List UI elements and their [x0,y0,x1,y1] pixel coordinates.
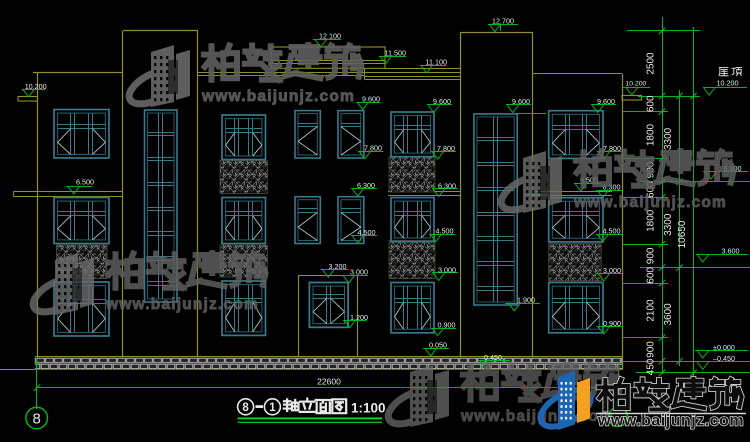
svg-text:3.000: 3.000 [350,268,368,277]
svg-text:600: 600 [646,95,657,112]
svg-text:3300: 3300 [663,127,674,150]
svg-text:www.baijunjz.com: www.baijunjz.com [573,194,727,211]
svg-text:0.050: 0.050 [429,341,447,350]
svg-text:6.500: 6.500 [76,178,94,187]
svg-text:900: 900 [646,341,657,358]
svg-text:1:100: 1:100 [351,401,386,416]
svg-text:www.baijunjz.com: www.baijunjz.com [201,88,355,105]
svg-text:7.800: 7.800 [364,144,382,153]
svg-text:±0.000: ±0.000 [713,343,735,352]
svg-text:9.600: 9.600 [362,95,380,104]
svg-text:4.500: 4.500 [436,226,454,235]
svg-text:7.800: 7.800 [437,144,455,153]
svg-text:1800: 1800 [646,123,657,146]
svg-text:www.baijunjz.com: www.baijunjz.com [460,408,614,425]
svg-text:1.200: 1.200 [350,313,368,322]
svg-text:900: 900 [646,247,657,264]
svg-text:8: 8 [33,411,41,428]
svg-text:4.500: 4.500 [358,228,376,237]
svg-text:6.300: 6.300 [438,181,456,190]
svg-text:11.500: 11.500 [385,49,406,58]
svg-text:9.600: 9.600 [512,97,530,106]
svg-text:www.baijunjz.com: www.baijunjz.com [105,296,259,313]
svg-text:12.100: 12.100 [319,32,341,41]
svg-text:2500: 2500 [646,52,657,75]
svg-text:–0.450: –0.450 [713,354,735,363]
svg-text:3.200: 3.200 [329,262,347,271]
svg-text:3.000: 3.000 [438,265,456,274]
svg-text:10650: 10650 [677,220,688,248]
svg-text:4.500: 4.500 [603,226,621,235]
svg-text:8: 8 [242,402,249,414]
svg-text:3600: 3600 [663,303,674,326]
svg-text:–0.450: –0.450 [480,353,502,362]
svg-text:1800: 1800 [646,209,657,232]
svg-text:2100: 2100 [646,299,657,322]
svg-text:0.900: 0.900 [438,320,456,329]
svg-text:10.200: 10.200 [717,79,739,88]
svg-text:7.800: 7.800 [603,144,621,153]
svg-text:6.300: 6.300 [357,181,375,190]
svg-text:600: 600 [646,267,657,284]
svg-text:11.100: 11.100 [426,58,447,67]
svg-text:22600: 22600 [317,377,341,387]
svg-text:9.600: 9.600 [433,97,451,106]
svg-text:9.600: 9.600 [597,97,615,106]
svg-text:1.900: 1.900 [517,295,535,304]
svg-text:450: 450 [646,358,657,375]
svg-text:10.200: 10.200 [626,81,647,88]
svg-text:3.000: 3.000 [603,266,621,275]
svg-text:0.900: 0.900 [603,319,621,328]
svg-text:1: 1 [269,402,276,414]
svg-text:3300: 3300 [663,213,674,236]
svg-text:3.600: 3.600 [722,247,740,256]
svg-text:10.200: 10.200 [25,82,47,91]
svg-text:www.baijunjz.com: www.baijunjz.com [597,413,744,430]
svg-text:12.700: 12.700 [492,17,514,26]
